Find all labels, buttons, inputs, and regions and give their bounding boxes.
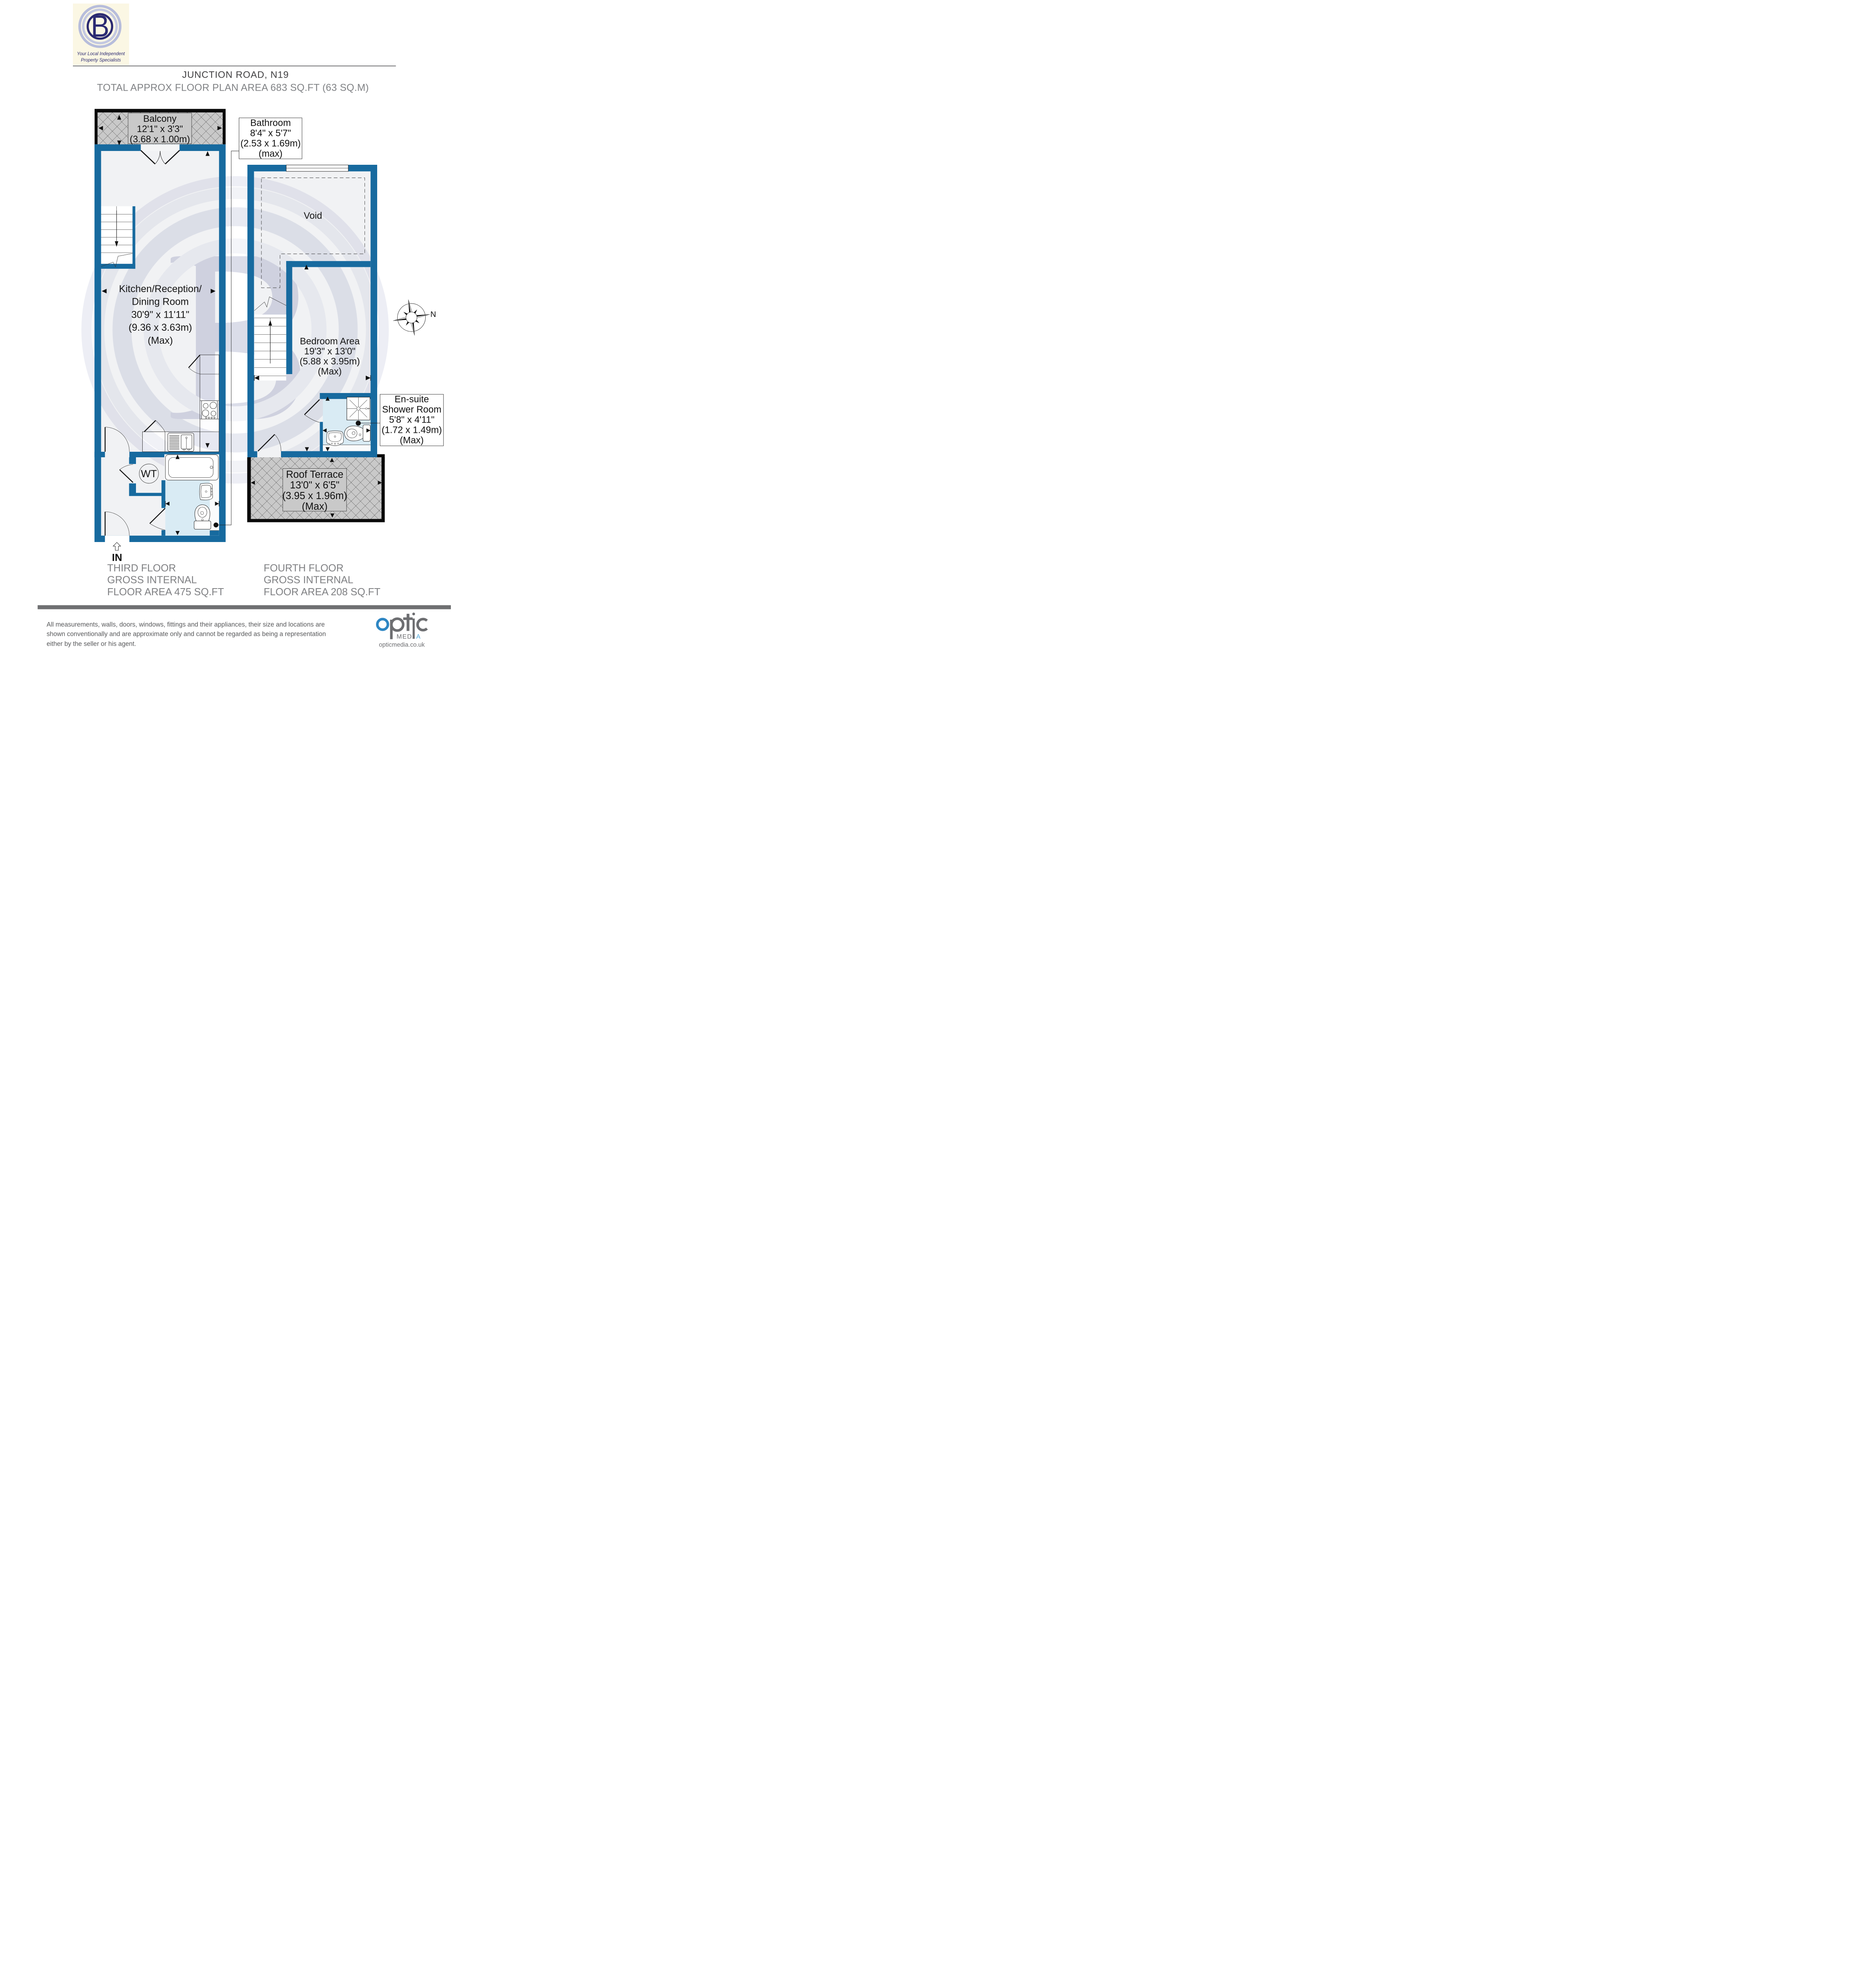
- svg-text:GROSS INTERNAL: GROSS INTERNAL: [264, 575, 354, 586]
- svg-text:Property Specialists: Property Specialists: [81, 58, 121, 63]
- svg-text:Shower Room: Shower Room: [382, 404, 441, 415]
- svg-text:(5.88 x 3.95m): (5.88 x 3.95m): [300, 356, 360, 367]
- svg-text:FOURTH FLOOR: FOURTH FLOOR: [264, 563, 344, 574]
- svg-text:GROSS INTERNAL: GROSS INTERNAL: [107, 575, 197, 586]
- svg-text:Roof Terrace: Roof Terrace: [286, 469, 344, 480]
- svg-text:TOTAL APPROX FLOOR PLAN AREA 6: TOTAL APPROX FLOOR PLAN AREA 683 SQ.FT (…: [97, 82, 369, 93]
- svg-text:19'3" x 13'0": 19'3" x 13'0": [304, 346, 355, 357]
- svg-text:(3.95 x 1.96m): (3.95 x 1.96m): [282, 490, 347, 501]
- svg-text:JUNCTION ROAD, N19: JUNCTION ROAD, N19: [182, 70, 289, 80]
- svg-text:either by the seller or his ag: either by the seller or his agent.: [47, 640, 136, 647]
- svg-text:Balcony: Balcony: [143, 114, 177, 124]
- svg-text:Bathroom: Bathroom: [250, 118, 291, 129]
- svg-text:(Max): (Max): [318, 366, 342, 377]
- svg-text:FLOOR AREA 208 SQ.FT: FLOOR AREA 208 SQ.FT: [264, 587, 380, 598]
- svg-text:30'9" x 11'11": 30'9" x 11'11": [131, 309, 189, 320]
- svg-text:Your Local Independent: Your Local Independent: [77, 52, 125, 56]
- svg-text:8'4" x 5'7": 8'4" x 5'7": [250, 128, 291, 139]
- svg-text:(9.36 x 3.63m): (9.36 x 3.63m): [128, 322, 192, 333]
- svg-text:WT: WT: [141, 468, 157, 480]
- svg-text:12'1" x 3'3": 12'1" x 3'3": [137, 124, 183, 134]
- svg-text:shown conventionally and are a: shown conventionally and are approximate…: [47, 631, 326, 638]
- svg-text:(Max): (Max): [400, 435, 424, 446]
- svg-text:Dining Room: Dining Room: [132, 296, 189, 307]
- svg-text:THIRD FLOOR: THIRD FLOOR: [107, 563, 176, 574]
- svg-text:(Max): (Max): [302, 501, 328, 512]
- svg-text:opticmedia.co.uk: opticmedia.co.uk: [379, 642, 425, 648]
- svg-text:Kitchen/Reception/: Kitchen/Reception/: [119, 283, 202, 294]
- svg-text:5'8" x 4'11": 5'8" x 4'11": [389, 415, 434, 425]
- svg-text:MED: MED: [396, 633, 412, 640]
- svg-text:A: A: [416, 633, 421, 640]
- svg-text:13'0" x 6'5": 13'0" x 6'5": [290, 480, 340, 491]
- svg-text:(2.53 x 1.69m): (2.53 x 1.69m): [240, 138, 301, 149]
- svg-text:IN: IN: [112, 551, 122, 563]
- svg-text:FLOOR AREA 475 SQ.FT: FLOOR AREA 475 SQ.FT: [107, 587, 224, 598]
- svg-text:B: B: [91, 9, 110, 43]
- svg-text:N: N: [430, 310, 436, 319]
- svg-text:(Max): (Max): [148, 335, 173, 346]
- svg-text:En-suite: En-suite: [395, 394, 429, 405]
- svg-text:Void: Void: [304, 211, 322, 221]
- svg-text:(max): (max): [259, 149, 283, 159]
- svg-text:(1.72 x 1.49m): (1.72 x 1.49m): [382, 425, 442, 436]
- svg-text:Bedroom Area: Bedroom Area: [300, 336, 360, 347]
- svg-text:(3.68 x 1.00m): (3.68 x 1.00m): [130, 134, 190, 145]
- svg-text:All measurements, walls, doors: All measurements, walls, doors, windows,…: [47, 621, 325, 628]
